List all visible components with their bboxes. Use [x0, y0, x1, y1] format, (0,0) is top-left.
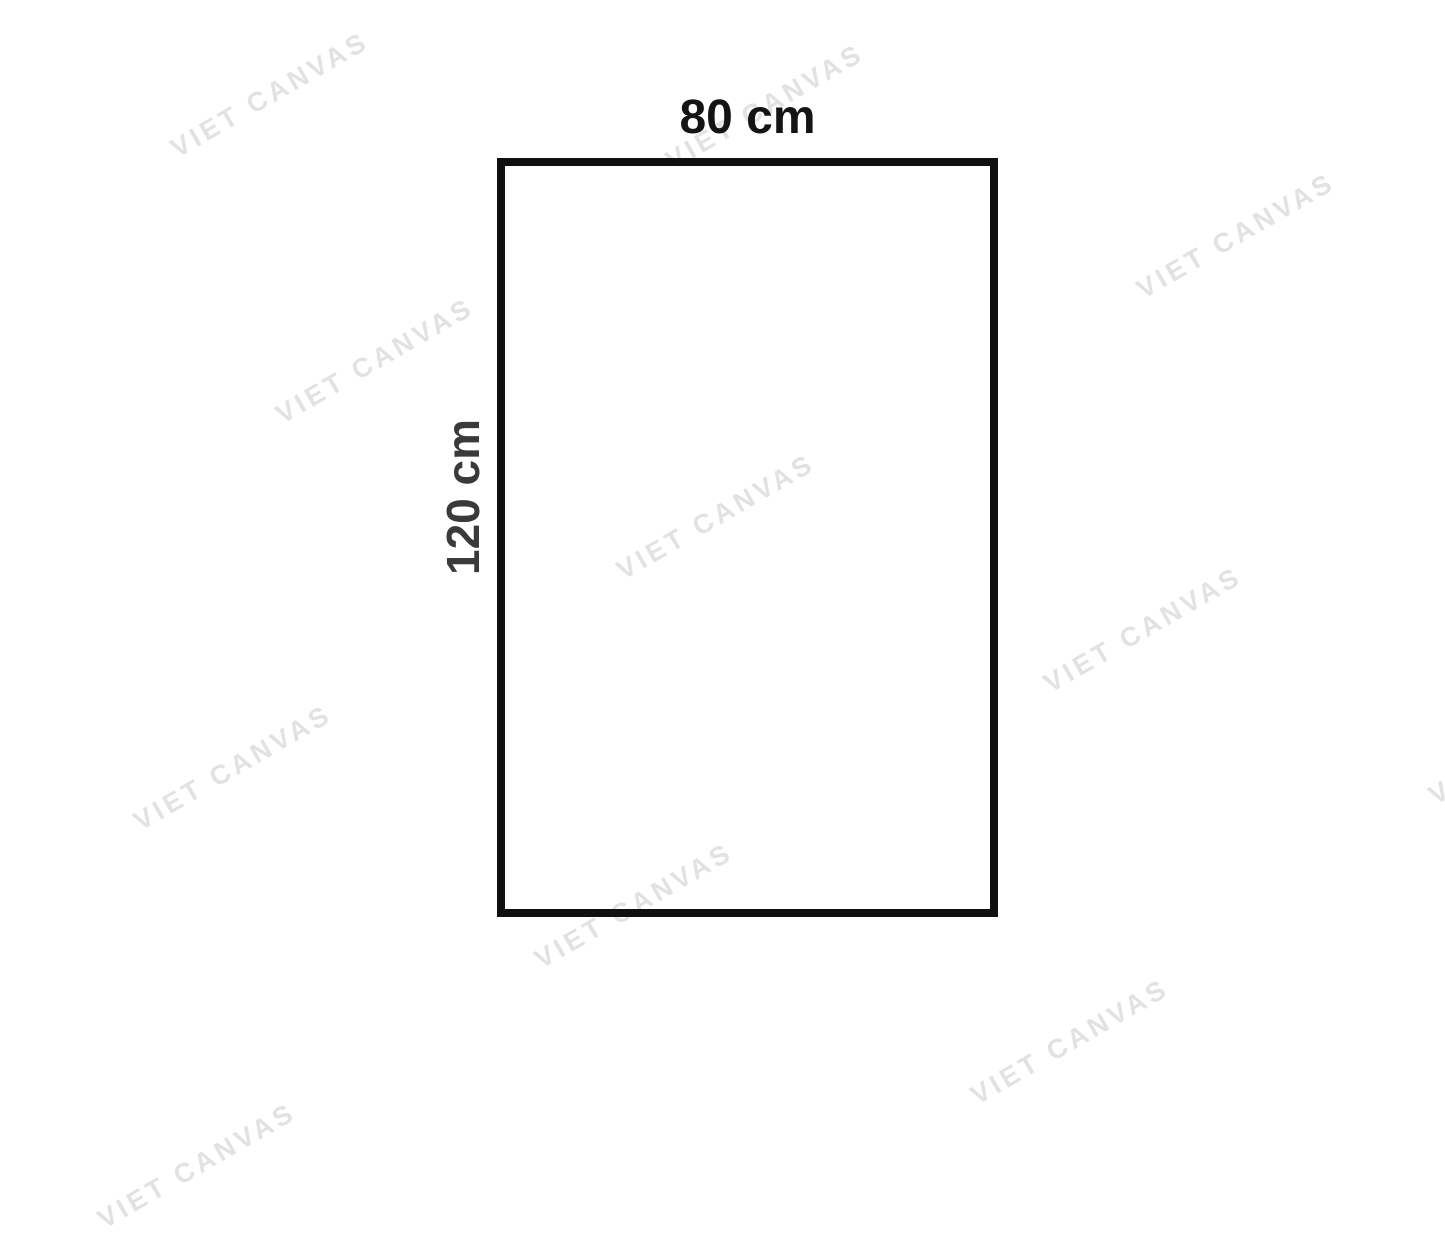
- height-dimension-label: 120 cm: [440, 419, 486, 575]
- canvas-rectangle-outline: [497, 158, 998, 917]
- diagram-layer: 80 cm 120 cm: [0, 0, 1445, 1156]
- width-dimension-label: 80 cm: [497, 94, 998, 142]
- product-dimension-diagram: { "diagram": { "width_label": "80 cm", "…: [0, 0, 1445, 1156]
